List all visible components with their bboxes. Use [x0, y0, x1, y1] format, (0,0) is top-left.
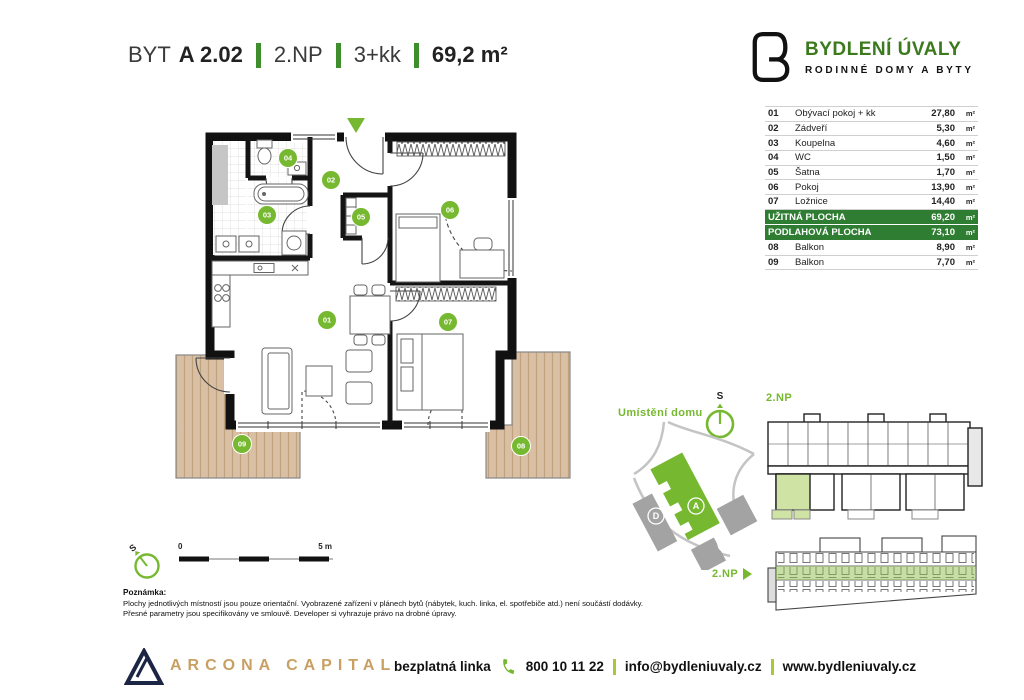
- table-total-row: PODLAHOVÁ PLOCHA73,10m²: [765, 225, 978, 241]
- building-label: D: [653, 511, 660, 521]
- brand-logo: BYDLENÍ ÚVALY RODINNÉ DOMY A BYTY: [750, 30, 974, 84]
- note-line-2: Přesné parametry jsou specifikovány ve s…: [123, 609, 733, 620]
- phone-label: bezplatná linka: [394, 659, 491, 674]
- table-row: 02Zádveří5,30m²: [765, 122, 978, 137]
- title-area: 69,2 m²: [432, 42, 508, 68]
- building-label: C: [681, 559, 688, 569]
- table-row: 01Obývací pokoj + kk27,80m²: [765, 107, 978, 122]
- room-badge-number: 02: [327, 176, 335, 185]
- title-floor: 2.NP: [274, 42, 323, 68]
- plan-compass-icon: S: [124, 538, 170, 586]
- room-badge-number: 01: [323, 316, 331, 325]
- building-label: A: [693, 501, 700, 511]
- room-badge-number: 08: [517, 442, 525, 451]
- site-plan: ABCD: [612, 420, 772, 570]
- footer-separator: [613, 659, 616, 675]
- table-total-row: UŽITNÁ PLOCHA69,20m²: [765, 210, 978, 226]
- scale-end: 5 m: [318, 542, 332, 551]
- table-row: 05Šatna1,70m²: [765, 166, 978, 181]
- arcona-logo-icon: [124, 648, 164, 686]
- title-separator: [336, 43, 341, 68]
- table-row: 04WC1,50m²: [765, 151, 978, 166]
- elevation-arrow-icon: [743, 568, 752, 580]
- building-label: B: [723, 539, 730, 549]
- title-disposition: 3+kk: [354, 42, 401, 68]
- scale-bar: 0 5 m: [178, 542, 334, 569]
- note: Poznámka: Plochy jednotlivých místností …: [123, 588, 733, 620]
- table-row: 09Balkon7,70m²: [765, 256, 978, 271]
- phone-number: 800 10 11 22: [526, 659, 604, 674]
- bydleni-uvaly-mark-icon: [750, 30, 792, 84]
- email-link[interactable]: info@bydleniuvaly.cz: [625, 659, 762, 674]
- area-table: 01Obývací pokoj + kk27,80m²02Zádveří5,30…: [765, 106, 978, 270]
- shaft: [212, 145, 228, 205]
- brand-tagline: RODINNÉ DOMY A BYTY: [805, 65, 974, 76]
- site-plan-label: Umístění domu: [618, 407, 703, 419]
- room-badge-number: 03: [263, 211, 271, 220]
- title-byt: BYT: [128, 42, 171, 68]
- footer-contact: bezplatná linka 800 10 11 22 info@bydlen…: [394, 658, 916, 675]
- flyer-page: BYTA 2.02 2.NP 3+kk 69,2 m² BYDLENÍ ÚVAL…: [0, 0, 1024, 700]
- page-title: BYTA 2.02 2.NP 3+kk 69,2 m²: [128, 42, 508, 68]
- website-link[interactable]: www.bydleniuvaly.cz: [783, 659, 917, 674]
- table-row: 08Balkon8,90m²: [765, 241, 978, 256]
- phone-icon: [500, 658, 517, 675]
- table-row: 07Ložnice14,40m²: [765, 195, 978, 210]
- room-badge-number: 06: [446, 206, 454, 215]
- table-row: 06Pokoj13,90m²: [765, 180, 978, 195]
- svg-text:S: S: [717, 391, 724, 402]
- note-line-1: Plochy jednotlivých místností jsou pouze…: [123, 599, 733, 610]
- overview-highlighted-unit: [776, 474, 810, 510]
- title-separator: [256, 43, 261, 68]
- floor-plan: 010203040506070809: [150, 108, 590, 488]
- room-badge-number: 07: [444, 318, 452, 327]
- room-badge-number: 05: [357, 213, 365, 222]
- room-badge-number: 09: [238, 440, 246, 449]
- title-separator: [414, 43, 419, 68]
- title-unit: A 2.02: [179, 42, 243, 68]
- elevation-label: 2.NP: [712, 568, 752, 580]
- footer-separator: [771, 659, 774, 675]
- floor-overview: [760, 406, 988, 522]
- overview-label: 2.NP: [766, 392, 792, 404]
- building-elevation: [762, 528, 990, 620]
- scale-start: 0: [178, 542, 182, 551]
- table-row: 03Koupelna4,60m²: [765, 136, 978, 151]
- brand-name: BYDLENÍ ÚVALY: [805, 39, 974, 61]
- note-heading: Poznámka:: [123, 588, 733, 599]
- elevation-highlighted-floor: [776, 566, 976, 580]
- room-badge-number: 04: [284, 154, 293, 163]
- arcona-brand: ARCONA CAPITAL: [170, 657, 396, 675]
